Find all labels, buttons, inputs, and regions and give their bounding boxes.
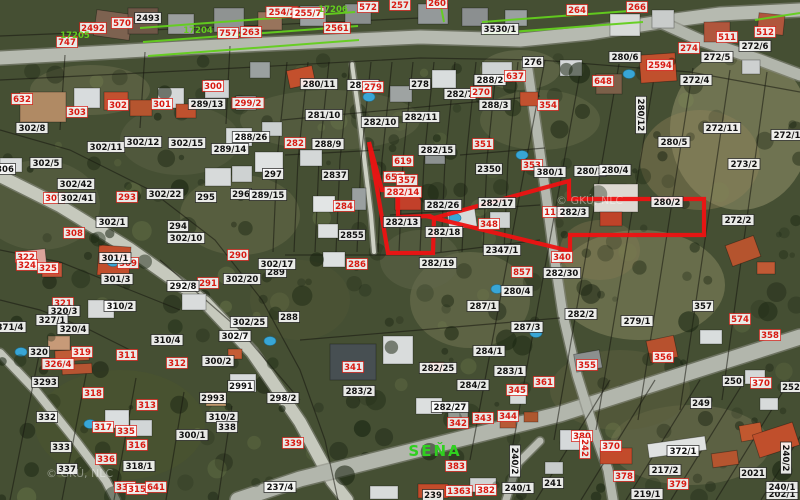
svg-text:2837: 2837 bbox=[323, 171, 347, 181]
svg-text:280/11: 280/11 bbox=[303, 80, 336, 90]
house-number-label: 357 bbox=[396, 175, 417, 187]
house-number-label: 383 bbox=[445, 461, 466, 473]
house-number-label: 343 bbox=[472, 413, 493, 425]
svg-text:301: 301 bbox=[153, 100, 171, 110]
svg-text:318: 318 bbox=[84, 389, 102, 399]
svg-text:339: 339 bbox=[284, 439, 302, 449]
house-number-label: 326/4 bbox=[42, 359, 74, 371]
parcel-number-label: 300/1 bbox=[176, 430, 208, 442]
svg-text:383: 383 bbox=[447, 462, 465, 472]
svg-text:294: 294 bbox=[169, 222, 187, 232]
building bbox=[524, 412, 538, 422]
parcel-number-label: 289/14 bbox=[211, 144, 248, 156]
house-number-label: 317 bbox=[92, 422, 113, 434]
parcel-number-label: 272/11 bbox=[703, 123, 740, 135]
house-number-label: 315 bbox=[126, 484, 147, 496]
house-number-label: 282 bbox=[284, 138, 305, 150]
parcel-number-label: 3530/1 bbox=[481, 24, 518, 36]
svg-text:282/25: 282/25 bbox=[422, 364, 455, 374]
house-number-label: 2561 bbox=[324, 23, 351, 35]
svg-text:313: 313 bbox=[138, 401, 156, 411]
parcel-number-label: 217/2 bbox=[649, 465, 681, 477]
parcel-number-label: 250 bbox=[722, 376, 743, 388]
house-number-label: 282/14 bbox=[384, 187, 421, 199]
parcel-number-label: 295 bbox=[195, 192, 216, 204]
parcel-number-label: 287/3 bbox=[511, 322, 543, 334]
svg-text:648: 648 bbox=[594, 77, 612, 87]
svg-text:241: 241 bbox=[544, 479, 562, 489]
survey-line-label: 17204 bbox=[183, 26, 213, 36]
svg-text:302/20: 302/20 bbox=[226, 275, 259, 285]
svg-text:263: 263 bbox=[242, 28, 260, 38]
svg-text:296: 296 bbox=[232, 190, 250, 200]
svg-text:288/26: 288/26 bbox=[235, 133, 268, 143]
svg-text:282/26: 282/26 bbox=[427, 201, 460, 211]
svg-text:284/2: 284/2 bbox=[460, 381, 487, 391]
svg-text:3530/1: 3530/1 bbox=[484, 25, 517, 35]
svg-text:320/4: 320/4 bbox=[60, 325, 87, 335]
svg-text:308: 308 bbox=[65, 229, 83, 239]
svg-text:318/1: 318/1 bbox=[126, 462, 153, 472]
svg-text:288/9: 288/9 bbox=[315, 140, 342, 150]
parcel-number-label: 296 bbox=[230, 189, 251, 201]
svg-text:2855: 2855 bbox=[340, 231, 364, 241]
svg-text:324: 324 bbox=[18, 261, 36, 271]
svg-text:303: 303 bbox=[68, 108, 86, 118]
svg-text:280/5: 280/5 bbox=[661, 138, 688, 148]
svg-text:282/7: 282/7 bbox=[447, 90, 474, 100]
svg-text:300/2: 300/2 bbox=[205, 357, 232, 367]
parcel-number-label: 302/17 bbox=[258, 259, 295, 271]
house-number-label: 303 bbox=[66, 107, 87, 119]
building bbox=[760, 398, 778, 410]
house-number-label: 257 bbox=[389, 0, 410, 11]
parcel-number-label: 283/2 bbox=[343, 386, 375, 398]
svg-text:316: 316 bbox=[128, 441, 146, 451]
svg-text:2993: 2993 bbox=[201, 394, 225, 404]
house-number-label: 270 bbox=[470, 87, 491, 99]
parcel-number-label: 2493 bbox=[135, 13, 162, 25]
house-number-label: 512 bbox=[754, 27, 775, 39]
house-number-label: 345 bbox=[506, 385, 527, 397]
parcel-number-label: 380/1 bbox=[534, 167, 566, 179]
parcel-number-label: 2855 bbox=[339, 230, 366, 242]
svg-text:293: 293 bbox=[118, 193, 136, 203]
parcel-number-label: 302/25 bbox=[230, 317, 267, 329]
house-number-label: 340 bbox=[551, 252, 572, 264]
parcel-number-label: 280/4 bbox=[599, 165, 631, 177]
svg-text:2991: 2991 bbox=[229, 382, 253, 392]
house-number-label: 336 bbox=[95, 454, 116, 466]
svg-text:254/2: 254/2 bbox=[269, 8, 296, 18]
house-number-label: 637 bbox=[504, 71, 525, 83]
parcel-number-label: 371/4 bbox=[0, 322, 26, 334]
svg-text:282/30: 282/30 bbox=[546, 269, 579, 279]
parcel-number-label: 302/10 bbox=[167, 233, 204, 245]
parcel-number-label: 282/18 bbox=[425, 227, 462, 239]
svg-text:283/2: 283/2 bbox=[346, 387, 373, 397]
parcel-number-label: 302/20 bbox=[223, 274, 260, 286]
svg-text:312: 312 bbox=[168, 359, 186, 369]
house-number-label: 274 bbox=[678, 43, 699, 55]
svg-text:311: 311 bbox=[118, 351, 136, 361]
parcel-number-label: 302/42 bbox=[57, 179, 94, 191]
svg-text:17204: 17204 bbox=[183, 26, 213, 36]
house-number-label: 361 bbox=[533, 377, 554, 389]
svg-text:2350: 2350 bbox=[477, 165, 501, 175]
svg-text:301/3: 301/3 bbox=[104, 275, 131, 285]
svg-text:315: 315 bbox=[128, 485, 146, 495]
svg-text:288: 288 bbox=[280, 313, 298, 323]
svg-text:382: 382 bbox=[477, 486, 495, 496]
svg-text:2561: 2561 bbox=[325, 24, 349, 34]
parcel-number-label: 240/2 bbox=[780, 442, 792, 474]
house-number-label: 290 bbox=[227, 250, 248, 262]
house-number-label: 242 bbox=[579, 437, 591, 458]
svg-text:310/2: 310/2 bbox=[107, 302, 134, 312]
svg-text:302/15: 302/15 bbox=[171, 139, 204, 149]
building bbox=[205, 168, 231, 186]
parcel-number-label: 2347/1 bbox=[483, 245, 520, 257]
building bbox=[313, 196, 335, 212]
svg-text:289/14: 289/14 bbox=[214, 145, 247, 155]
parcel-number-label: 301/3 bbox=[101, 274, 133, 286]
svg-text:282/11: 282/11 bbox=[405, 113, 438, 123]
svg-text:272/6: 272/6 bbox=[742, 42, 769, 52]
parcel-number-label: 272/4 bbox=[680, 75, 712, 87]
svg-text:282: 282 bbox=[286, 139, 304, 149]
parcel-number-label: 282/3 bbox=[557, 207, 589, 219]
svg-text:219/1: 219/1 bbox=[634, 490, 661, 500]
parcel-number-label: 280/5 bbox=[658, 137, 690, 149]
building bbox=[370, 486, 398, 499]
svg-text:2347/1: 2347/1 bbox=[486, 246, 519, 256]
parcel-number-label: 278 bbox=[409, 79, 430, 91]
parcel-number-label: 2993 bbox=[200, 393, 227, 405]
svg-text:289/13: 289/13 bbox=[191, 100, 224, 110]
house-number-label: 319 bbox=[71, 347, 92, 359]
svg-text:2594: 2594 bbox=[648, 61, 672, 71]
parcel-number-label: 302/15 bbox=[168, 138, 205, 150]
parcel-number-label: 280/6 bbox=[609, 52, 641, 64]
svg-text:279: 279 bbox=[364, 83, 382, 93]
parcel-number-label: 338 bbox=[216, 422, 237, 434]
parcel-number-label: 280/2 bbox=[651, 197, 683, 209]
svg-text:290: 290 bbox=[229, 251, 247, 261]
svg-text:280/2: 280/2 bbox=[654, 198, 681, 208]
house-number-label: 302 bbox=[107, 100, 128, 112]
svg-text:302/42: 302/42 bbox=[60, 180, 93, 190]
parcel-number-label: 310/4 bbox=[151, 335, 183, 347]
house-number-label: 641 bbox=[145, 482, 166, 494]
svg-text:356: 356 bbox=[654, 353, 672, 363]
building bbox=[390, 86, 412, 102]
svg-text:325: 325 bbox=[39, 264, 57, 274]
house-number-label: 574 bbox=[729, 314, 750, 326]
svg-text:302: 302 bbox=[109, 101, 127, 111]
house-number-label: 316 bbox=[126, 440, 147, 452]
parcel-number-label: 281/10 bbox=[305, 110, 342, 122]
svg-text:3293: 3293 bbox=[33, 378, 57, 388]
svg-text:302/10: 302/10 bbox=[170, 234, 203, 244]
house-number-label: 291 bbox=[197, 278, 218, 290]
svg-text:282/27: 282/27 bbox=[434, 403, 467, 413]
parcel-number-label: 282/15 bbox=[418, 145, 455, 157]
building bbox=[130, 100, 152, 116]
svg-text:295: 295 bbox=[197, 193, 215, 203]
house-number-label: 342 bbox=[447, 418, 468, 430]
parcel-number-label: 276 bbox=[522, 57, 543, 69]
svg-text:240/1: 240/1 bbox=[769, 483, 796, 493]
svg-text:284: 284 bbox=[335, 202, 353, 212]
house-number-label: 266 bbox=[626, 2, 647, 14]
building bbox=[700, 330, 722, 344]
svg-text:342: 342 bbox=[449, 419, 467, 429]
building bbox=[250, 62, 270, 78]
svg-text:17206: 17206 bbox=[318, 5, 348, 15]
svg-text:276: 276 bbox=[524, 58, 542, 68]
parcel-number-label: 2350 bbox=[476, 164, 503, 176]
house-number-label: 339 bbox=[282, 438, 303, 450]
svg-text:619: 619 bbox=[394, 157, 412, 167]
svg-text:326/4: 326/4 bbox=[45, 360, 72, 370]
house-number-label: 2594 bbox=[647, 60, 674, 72]
svg-text:281/10: 281/10 bbox=[308, 111, 341, 121]
svg-text:511: 511 bbox=[718, 33, 736, 43]
house-number-label: 263 bbox=[240, 27, 261, 39]
parcel-number-label: 302/41 bbox=[58, 193, 95, 205]
svg-text:320: 320 bbox=[30, 348, 48, 358]
parcel-number-label: 282/13 bbox=[383, 217, 420, 229]
house-number-label: 355 bbox=[576, 360, 597, 372]
svg-text:301/1: 301/1 bbox=[102, 254, 129, 264]
parcel-number-label: 288/3 bbox=[479, 100, 511, 112]
watermark: © GKÚ, NLC bbox=[46, 467, 113, 480]
building bbox=[652, 10, 674, 28]
parcel-number-label: 302/12 bbox=[124, 137, 161, 149]
svg-text:1363: 1363 bbox=[447, 487, 471, 497]
house-number-label: 318 bbox=[82, 388, 103, 400]
svg-text:283/1: 283/1 bbox=[497, 367, 524, 377]
parcel-number-label: 372/1 bbox=[667, 446, 699, 458]
parcel-number-label: 282/25 bbox=[419, 363, 456, 375]
watermark: © GKÚ, NLC bbox=[556, 194, 623, 207]
parcel-number-label: 272/2 bbox=[722, 215, 754, 227]
svg-text:338: 338 bbox=[218, 423, 236, 433]
parcel-number-label: 302/5 bbox=[30, 158, 62, 170]
svg-text:264: 264 bbox=[568, 6, 586, 16]
parcel-number-label: 240/1 bbox=[502, 483, 534, 495]
parcel-number-label: 240/2 bbox=[509, 445, 521, 477]
parcel-number-label: 298/2 bbox=[267, 393, 299, 405]
svg-text:280/4: 280/4 bbox=[504, 287, 531, 297]
parcel-number-label: 2991 bbox=[228, 381, 255, 393]
parcel-number-label: 249 bbox=[690, 398, 711, 410]
svg-text:272/4: 272/4 bbox=[683, 76, 710, 86]
svg-text:272/5: 272/5 bbox=[704, 53, 731, 63]
svg-text:332: 332 bbox=[38, 413, 56, 423]
house-number-label: 260 bbox=[426, 0, 447, 9]
house-number-label: 857 bbox=[511, 267, 532, 279]
building bbox=[232, 166, 252, 182]
building bbox=[600, 212, 622, 226]
house-number-label: 358 bbox=[759, 330, 780, 342]
house-number-label: 335 bbox=[115, 426, 136, 438]
parcel-number-label: 332 bbox=[36, 412, 57, 424]
cadastral-map[interactable]: 74724925702493757263254/2255/72561572257… bbox=[0, 0, 800, 500]
parcel-number-label: 320/4 bbox=[57, 324, 89, 336]
parcel-number-label: 287/1 bbox=[467, 301, 499, 313]
svg-text:240/1: 240/1 bbox=[505, 484, 532, 494]
parcel-number-label: 288 bbox=[278, 312, 299, 324]
svg-text:287/3: 287/3 bbox=[514, 323, 541, 333]
parcel-number-label: 300/2 bbox=[202, 356, 234, 368]
svg-text:278: 278 bbox=[411, 80, 429, 90]
svg-text:302/1: 302/1 bbox=[99, 218, 126, 228]
parcel-number-label: 288/2 bbox=[474, 75, 506, 87]
house-number-label: 293 bbox=[116, 192, 137, 204]
svg-text:249: 249 bbox=[692, 399, 710, 409]
svg-text:333: 333 bbox=[52, 443, 70, 453]
parcel-number-label: 292/8 bbox=[167, 281, 199, 293]
building bbox=[545, 462, 563, 474]
svg-text:250: 250 bbox=[724, 377, 742, 387]
svg-text:336: 336 bbox=[97, 455, 115, 465]
svg-text:302/17: 302/17 bbox=[261, 260, 294, 270]
house-number-label: 570 bbox=[111, 18, 132, 30]
svg-text:266: 266 bbox=[628, 3, 646, 13]
svg-text:370: 370 bbox=[602, 442, 620, 452]
house-number-label: 572 bbox=[357, 2, 378, 14]
svg-text:355: 355 bbox=[578, 361, 596, 371]
svg-text:288/2: 288/2 bbox=[477, 76, 504, 86]
house-number-label: 344 bbox=[497, 411, 518, 423]
house-number-label: 348 bbox=[478, 219, 499, 231]
house-number-label: 619 bbox=[392, 156, 413, 168]
svg-text:317: 317 bbox=[94, 423, 112, 433]
svg-text:273/2: 273/2 bbox=[731, 160, 758, 170]
parcel-number-label: 283/1 bbox=[494, 366, 526, 378]
svg-text:282/17: 282/17 bbox=[481, 199, 514, 209]
svg-text:282/14: 282/14 bbox=[387, 188, 420, 198]
svg-text:242: 242 bbox=[579, 439, 589, 457]
svg-text:282/3: 282/3 bbox=[560, 208, 587, 218]
building bbox=[742, 60, 760, 74]
svg-text:348: 348 bbox=[480, 220, 498, 230]
svg-text:357: 357 bbox=[398, 176, 416, 186]
building bbox=[300, 150, 322, 166]
svg-text:335: 335 bbox=[117, 427, 135, 437]
svg-text:297: 297 bbox=[264, 170, 282, 180]
map-viewport[interactable]: 74724925702493757263254/2255/72561572257… bbox=[0, 0, 800, 500]
svg-text:217/2: 217/2 bbox=[652, 466, 679, 476]
svg-text:272/1: 272/1 bbox=[774, 131, 800, 141]
parcel-number-label: 302/11 bbox=[87, 142, 124, 154]
svg-text:282/2: 282/2 bbox=[568, 310, 595, 320]
svg-text:2493: 2493 bbox=[136, 14, 160, 24]
svg-text:306: 306 bbox=[0, 165, 14, 175]
svg-text:280/6: 280/6 bbox=[612, 53, 639, 63]
parcel-number-label: 310/2 bbox=[104, 301, 136, 313]
parcel-number-label: 288/26 bbox=[232, 132, 269, 144]
svg-text:272/2: 272/2 bbox=[725, 216, 752, 226]
house-number-label: 279 bbox=[362, 82, 383, 94]
building bbox=[520, 92, 538, 106]
svg-text:319: 319 bbox=[73, 348, 91, 358]
survey-line-label: 17205 bbox=[60, 31, 90, 41]
svg-text:300: 300 bbox=[204, 82, 222, 92]
svg-text:637: 637 bbox=[506, 72, 524, 82]
house-number-label: 325 bbox=[37, 263, 58, 275]
parcel-number-label: 3293 bbox=[32, 377, 59, 389]
house-number-label: 264 bbox=[566, 5, 587, 17]
svg-text:237/4: 237/4 bbox=[267, 483, 294, 493]
survey-line-label: 17206 bbox=[318, 5, 348, 15]
svg-text:857: 857 bbox=[513, 268, 531, 278]
house-number-label: 300 bbox=[202, 81, 223, 93]
house-number-label: 313 bbox=[136, 400, 157, 412]
parcel-number-label: 288/9 bbox=[312, 139, 344, 151]
svg-text:298/2: 298/2 bbox=[270, 394, 297, 404]
parcel-number-label: 284/1 bbox=[473, 346, 505, 358]
svg-text:282/13: 282/13 bbox=[386, 218, 419, 228]
svg-text:357: 357 bbox=[694, 302, 712, 312]
parcel-number-label: 302/7 bbox=[219, 331, 251, 343]
house-number-label: 370 bbox=[750, 378, 771, 390]
house-number-label: 382 bbox=[475, 485, 496, 497]
parcel-number-label: 289/13 bbox=[188, 99, 225, 111]
house-number-label: 299/2 bbox=[232, 98, 264, 110]
parcel-number-label: 357 bbox=[692, 301, 713, 313]
svg-text:299/2: 299/2 bbox=[235, 99, 262, 109]
parcel-number-label: 272/5 bbox=[701, 52, 733, 64]
building bbox=[757, 262, 775, 274]
svg-text:574: 574 bbox=[731, 315, 749, 325]
svg-text:372/1: 372/1 bbox=[670, 447, 697, 457]
building bbox=[432, 70, 456, 88]
svg-text:292/8: 292/8 bbox=[170, 282, 197, 292]
svg-text:239: 239 bbox=[424, 491, 442, 500]
parcel-number-label: 282/17 bbox=[478, 198, 515, 210]
svg-text:351: 351 bbox=[474, 140, 492, 150]
svg-text:344: 344 bbox=[499, 412, 517, 422]
house-number-label: 1363 bbox=[446, 486, 473, 498]
svg-text:512: 512 bbox=[756, 28, 774, 38]
svg-text:572: 572 bbox=[359, 3, 377, 13]
building bbox=[318, 224, 338, 238]
house-number-label: 648 bbox=[592, 76, 613, 88]
svg-text:302/5: 302/5 bbox=[33, 159, 60, 169]
svg-text:286: 286 bbox=[348, 260, 366, 270]
svg-text:17205: 17205 bbox=[60, 31, 90, 41]
svg-text:289/15: 289/15 bbox=[252, 191, 285, 201]
svg-text:302/12: 302/12 bbox=[127, 138, 160, 148]
svg-text:282/15: 282/15 bbox=[421, 146, 454, 156]
parcel-number-label: 282/11 bbox=[402, 112, 439, 124]
parcel-number-label: 239 bbox=[422, 490, 443, 500]
place-name-label: SEŇA bbox=[408, 441, 461, 460]
parcel-number-label: 279/1 bbox=[621, 316, 653, 328]
parcel-number-label: 252 bbox=[780, 382, 800, 394]
svg-text:280/12: 280/12 bbox=[635, 99, 645, 132]
parcel-number-label: 2021 bbox=[740, 468, 767, 480]
svg-text:370: 370 bbox=[752, 379, 770, 389]
house-number-label: 284 bbox=[333, 201, 354, 213]
building bbox=[182, 294, 206, 310]
house-number-label: 632 bbox=[11, 94, 32, 106]
parcel-number-label: 280/11 bbox=[300, 79, 337, 91]
parcel-number-label: 237/4 bbox=[264, 482, 296, 494]
